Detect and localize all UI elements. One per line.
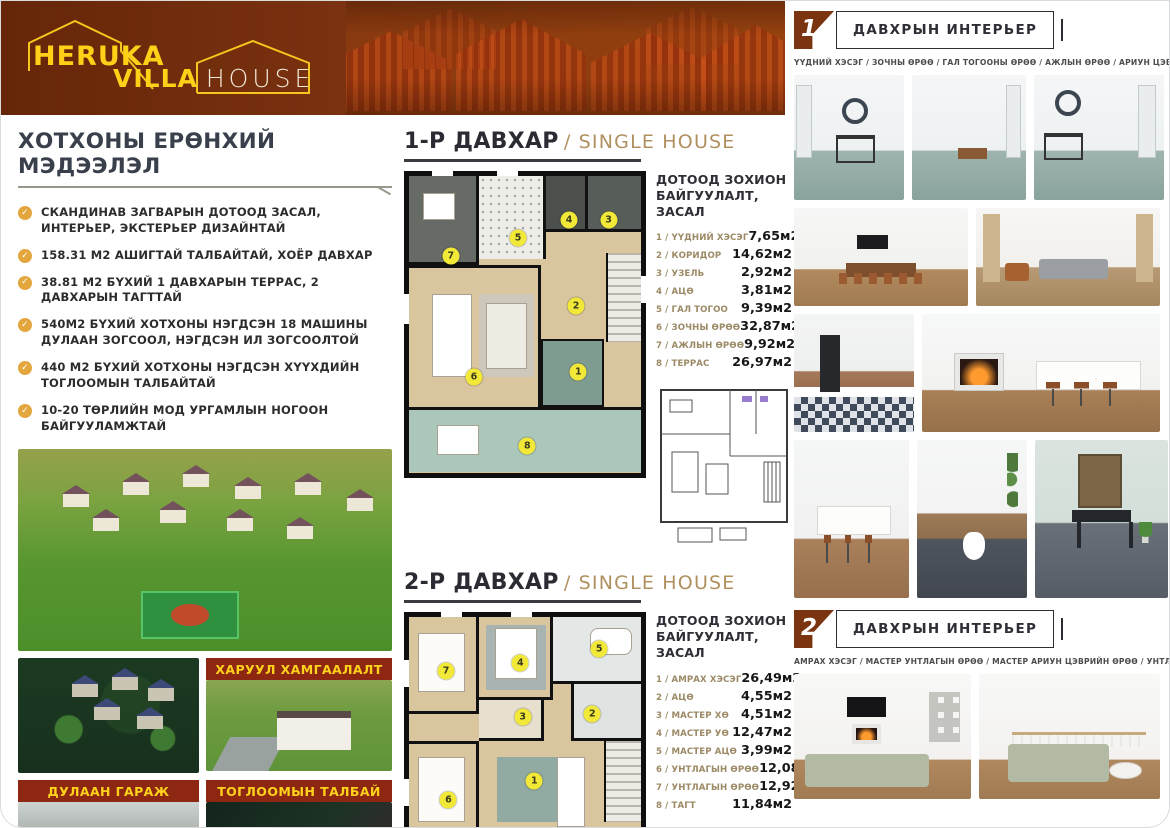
garage-photo-cell: ДУЛААН ГАРАЖ <box>18 780 199 828</box>
bed <box>418 757 464 822</box>
mini-house <box>94 707 120 720</box>
room-area: 9,92м2 <box>744 337 795 352</box>
mini-house <box>112 677 138 690</box>
feature-item: ✓ 10-20 ТӨРЛИЙН МОД УРГАМЛЫН НОГООН БАЙГ… <box>18 403 374 435</box>
floor1-heading: 1-Р ДАВХАР / SINGLE HOUSE <box>404 129 792 154</box>
room-area: 3,81м2 <box>741 283 792 298</box>
room-area: 26,97м2 <box>732 355 792 370</box>
feature-text: 540М2 БҮХИЙ ХОТХОНЫ НЭГДСЭН 18 МАШИНЫ ДУ… <box>41 317 374 349</box>
feature-item: ✓ 158.31 М2 АШИГТАЙ ТАЛБАЙТАЙ, ХОЁР ДАВХ… <box>18 248 374 264</box>
mini-house <box>72 684 98 697</box>
feature-text: 158.31 М2 АШИГТАЙ ТАЛБАЙТАЙ, ХОЁР ДАВХАР <box>41 248 373 264</box>
heading-underline <box>18 186 392 188</box>
security-photo-cell: ХАРУУЛ ХАМГААЛАЛТ <box>206 658 392 773</box>
bathroom-photo <box>917 440 1027 598</box>
interior1-row2 <box>794 208 1168 306</box>
check-icon: ✓ <box>18 249 32 263</box>
room-row: 1 / АМРАХ ХЭСЭГ 26,49м2 <box>656 671 792 686</box>
interior2-title: ДАВХРЫН ИНТЕРЬЕР <box>836 610 1054 648</box>
check-icon: ✓ <box>18 206 32 220</box>
room-area: 9,39м2 <box>741 301 792 316</box>
mini-house <box>93 518 119 531</box>
logo-text-house: HOUSE <box>206 64 314 93</box>
window <box>511 612 532 617</box>
general-info-section: ХОТХОНЫ ЕРӨНХИЙ МЭДЭЭЛЭЛ ✓ СКАНДИНАВ ЗАГ… <box>18 129 392 828</box>
room-row: 1 / ҮҮДНИЙ ХЭСЭГ 7,65м2 <box>656 229 792 244</box>
playground-photo <box>206 802 392 828</box>
stairs <box>604 741 641 822</box>
lounge-rug <box>497 757 557 822</box>
room-area: 26,49м2 <box>741 671 801 686</box>
room-row: 3 / МАСТЕР ХӨ 4,51м2 <box>656 707 792 722</box>
mini-house <box>347 498 373 511</box>
mini-house <box>160 510 186 523</box>
window <box>641 276 646 303</box>
interior1-row3 <box>794 314 1168 432</box>
bar-stool <box>824 535 831 563</box>
interior2-row1 <box>794 674 1168 799</box>
room-row: 7 / АЖЛЫН ӨРӨӨ 9,92м2 <box>656 337 792 352</box>
mini-house <box>148 688 174 701</box>
photo-row-2: ДУЛААН ГАРАЖ ТОГЛООМЫН ТАЛБАЙ <box>18 780 392 828</box>
interior2-header: 2 ДАВХРЫН ИНТЕРЬЕР <box>794 610 1168 648</box>
console-table <box>836 135 876 163</box>
floor2-block: 2-Р ДАВХАР / SINGLE HOUSE <box>404 570 792 828</box>
room-marker: 4 <box>512 654 529 671</box>
armchair <box>1005 263 1029 281</box>
room-name: 4 / АЦӨ <box>656 287 694 297</box>
room-area: 14,62м2 <box>732 247 792 262</box>
family-room-photo-2 <box>979 674 1160 799</box>
check-icon: ✓ <box>18 361 32 375</box>
round-mirror <box>1055 90 1081 116</box>
room-name: 1 / АМРАХ ХЭСЭГ <box>656 675 741 685</box>
bar-stool <box>1103 382 1117 406</box>
bed <box>495 628 537 679</box>
room-marker: 6 <box>465 369 482 386</box>
section-heading: ХОТХОНЫ ЕРӨНХИЙ МЭДЭЭЛЭЛ <box>18 129 392 179</box>
sofa <box>1008 744 1109 782</box>
floor1-plan: 7 5 4 3 2 1 6 8 <box>404 171 646 478</box>
room-name: 4 / МАСТЕР УӨ <box>656 729 729 739</box>
room-name: 6 / УНТЛАГЫН ӨРӨӨ <box>656 765 759 775</box>
bar-counter <box>817 506 891 534</box>
guard-gate-photo <box>206 680 392 771</box>
door <box>796 85 811 158</box>
toilet <box>963 532 985 560</box>
room-marker: 7 <box>442 247 459 264</box>
room-area: 32,87м2 <box>740 319 800 334</box>
plant <box>1139 522 1152 547</box>
playground-photo-cell: ТОГЛООМЫН ТАЛБАЙ <box>206 780 392 828</box>
top-banner: HERUKA VILLAHOUSE <box>1 1 785 115</box>
sofa <box>805 754 929 787</box>
garage-photo <box>18 802 199 828</box>
feature-text: 10-20 ТӨРЛИЙН МОД УРГАМЛЫН НОГООН БАЙГУУ… <box>41 403 374 435</box>
complex-aerial-night-photo <box>18 658 199 773</box>
dining-chairs <box>839 273 923 285</box>
room-marker: 2 <box>568 298 585 315</box>
mini-house <box>183 474 209 487</box>
floor2-underline <box>404 600 641 603</box>
coffee-table <box>1109 762 1142 780</box>
mini-house <box>235 486 261 499</box>
room-row: 6 / УНТЛАГЫН ӨРӨӨ 12,08м2 <box>656 761 792 776</box>
bar-stool <box>845 535 852 563</box>
feature-list: ✓ СКАНДИНАВ ЗАГВАРЫН ДОТООД ЗАСАЛ, ИНТЕР… <box>18 205 392 434</box>
interior1-title: ДАВХРЫН ИНТЕРЬЕР <box>836 11 1054 49</box>
stairs <box>606 253 641 342</box>
sofa <box>486 303 528 368</box>
tile-floor <box>794 397 914 432</box>
interior1-subtitle: ҮҮДНИЙ ХЭСЭГ / ЗОЧНЫ ӨРӨӨ / ГАЛ ТОГООНЫ … <box>794 58 1168 67</box>
room-name: 5 / МАСТЕР АЦӨ <box>656 747 737 757</box>
room-area: 11,84м2 <box>732 797 792 812</box>
dining-room-photo <box>794 208 968 306</box>
feature-item: ✓ СКАНДИНАВ ЗАГВАРЫН ДОТООД ЗАСАЛ, ИНТЕР… <box>18 205 374 237</box>
office-desk <box>1072 510 1131 523</box>
room-area: 7,65м2 <box>748 229 799 244</box>
mini-house <box>295 482 321 495</box>
feature-item: ✓ 440 М2 БҮХИЙ ХОТХОНЫ НЭГДСЭН ХҮҮХДИЙН … <box>18 360 374 392</box>
floor2-badge: 2 <box>794 610 834 648</box>
room-name: 3 / МАСТЕР ХӨ <box>656 711 729 721</box>
gate-road <box>212 737 286 772</box>
living-room-photo <box>976 208 1160 306</box>
room-marker: 1 <box>526 773 543 790</box>
mini-house <box>227 518 253 531</box>
picture-frames <box>929 692 961 742</box>
room-name: 1 / ҮҮДНИЙ ХЭСЭГ <box>656 233 748 243</box>
feature-item: ✓ 540М2 БҮХИЙ ХОТХОНЫ НЭГДСЭН 18 МАШИНЫ … <box>18 317 374 349</box>
room-name: 6 / ЗОЧНЫ ӨРӨӨ <box>656 323 740 333</box>
window <box>441 612 462 617</box>
room-marker: 5 <box>591 641 608 658</box>
entry-hall-photo-2 <box>912 75 1026 200</box>
room-row: 2 / АЦӨ 4,55м2 <box>656 689 792 704</box>
window <box>404 779 409 806</box>
room-row: 4 / МАСТЕР УӨ 12,47м2 <box>656 725 792 740</box>
room-list-heading: ДОТООД ЗОХИОН БАЙГУУЛАЛТ, ЗАСАЛ <box>656 613 792 662</box>
room-name: 2 / АЦӨ <box>656 693 694 703</box>
curtain <box>1136 214 1153 283</box>
room-kitchen <box>479 176 546 259</box>
floor1-blueprint <box>656 382 792 550</box>
logo-text-villa: VILLA <box>113 64 198 93</box>
room-list-heading: ДОТООД ЗОХИОН БАЙГУУЛАЛТ, ЗАСАЛ <box>656 172 792 221</box>
room-marker: 1 <box>570 363 587 380</box>
dining-table <box>432 294 471 377</box>
room-name: 2 / КОРИДОР <box>656 251 721 261</box>
tv <box>847 697 886 717</box>
room-area: 3,99м2 <box>741 743 792 758</box>
floor1-title: 1-Р ДАВХАР <box>404 129 559 154</box>
room-marker: 6 <box>440 792 457 809</box>
floor2-room-list: ДОТООД ЗОХИОН БАЙГУУЛАЛТ, ЗАСАЛ 1 / АМРА… <box>656 612 792 828</box>
kitchen-photo <box>794 314 914 432</box>
room-row: 2 / КОРИДОР 14,62м2 <box>656 247 792 262</box>
window <box>404 294 409 324</box>
title-tick <box>1061 19 1063 41</box>
mini-house <box>63 494 89 507</box>
room-row: 8 / ТЕРРАС 26,97м2 <box>656 355 792 370</box>
room-marker: 7 <box>438 662 455 679</box>
room-area: 12,47м2 <box>732 725 792 740</box>
fireplace <box>852 724 880 744</box>
entry-bench <box>958 148 988 159</box>
court-center <box>171 604 208 626</box>
room-name: 8 / ТАГТ <box>656 801 696 811</box>
entry-hall-photo-1 <box>794 75 904 200</box>
entry-hall-photo-3 <box>1034 75 1164 200</box>
interior1-header: 1 ДАВХРЫН ИНТЕРЬЕР <box>794 11 1168 49</box>
floor2-plan: 7 4 5 3 2 6 1 8 <box>404 612 646 828</box>
room-marker: 3 <box>514 708 531 725</box>
garage-label: ДУЛААН ГАРАЖ <box>18 780 199 802</box>
interior-gallery-section: 1 ДАВХРЫН ИНТЕРЬЕР ҮҮДНИЙ ХЭСЭГ / ЗОЧНЫ … <box>794 9 1168 799</box>
room-marker: 5 <box>510 229 527 246</box>
room-row: 4 / АЦӨ 3,81м2 <box>656 283 792 298</box>
bar-stool <box>865 535 872 563</box>
sports-court <box>141 591 238 639</box>
title-tick <box>1061 618 1063 640</box>
mini-house <box>287 526 313 539</box>
room-name: 8 / ТЕРРАС <box>656 359 709 369</box>
room-area: 4,51м2 <box>741 707 792 722</box>
interior2-subtitle: АМРАХ ХЭСЭГ / МАСТЕР УНТЛАГЫН ӨРӨӨ / МАС… <box>794 657 1168 666</box>
fireplace-bar-photo <box>922 314 1160 432</box>
room-area: 4,55м2 <box>741 689 792 704</box>
complex-aerial-day-photo <box>18 449 392 651</box>
fireplace <box>955 354 1003 389</box>
sofa <box>1039 259 1109 279</box>
room-marker: 4 <box>561 212 578 229</box>
bar-stool <box>1074 382 1088 406</box>
room-marker: 3 <box>600 212 617 229</box>
room-name: 3 / УЗЕЛЬ <box>656 269 704 279</box>
gate-house <box>277 711 351 749</box>
room-row: 5 / ГАЛ ТОГОО 9,39м2 <box>656 301 792 316</box>
check-icon: ✓ <box>18 276 32 290</box>
terrace-table <box>437 425 479 455</box>
floor1-block: 1-Р ДАВХАР / SINGLE HOUSE <box>404 129 792 554</box>
console-table <box>1044 133 1083 161</box>
room-row: 3 / УЗЕЛЬ 2,92м2 <box>656 265 792 280</box>
mini-house <box>137 716 163 729</box>
fridge <box>820 335 839 392</box>
room-row: 5 / МАСТЕР АЦӨ 3,99м2 <box>656 743 792 758</box>
interior1-row1 <box>794 75 1168 200</box>
check-icon: ✓ <box>18 318 32 332</box>
room-name: 5 / ГАЛ ТОГОО <box>656 305 728 315</box>
door <box>1006 85 1022 158</box>
floorplans-section: 1-Р ДАВХАР / SINGLE HOUSE <box>404 129 792 828</box>
floor2-blueprint <box>656 824 792 828</box>
check-icon: ✓ <box>18 404 32 418</box>
room-row: 6 / ЗОЧНЫ ӨРӨӨ 32,87м2 <box>656 319 792 334</box>
hanging-plant <box>1007 453 1018 519</box>
security-label: ХАРУУЛ ХАМГААЛАЛТ <box>206 658 392 680</box>
room-list: 1 / АМРАХ ХЭСЭГ 26,49м2 2 / АЦӨ 4,55м2 3… <box>656 671 792 812</box>
office-desk <box>423 193 455 220</box>
photo-row-1: ХАРУУЛ ХАМГААЛАЛТ <box>18 658 392 773</box>
room-list: 1 / ҮҮДНИЙ ХЭСЭГ 7,65м2 2 / КОРИДОР 14,6… <box>656 229 792 370</box>
window <box>432 171 453 176</box>
bar-stool <box>1046 382 1060 406</box>
room-row: 7 / УНТЛАГЫН ӨРӨӨ 12,92м2 <box>656 779 792 794</box>
logo-text-row2: VILLAHOUSE <box>113 64 314 93</box>
window <box>404 660 409 687</box>
feature-text: 38.81 М2 БҮХИЙ 1 ДАВХАРЫН ТЕРРАС, 2 ДАВХ… <box>41 275 374 307</box>
logo: HERUKA VILLAHOUSE <box>1 1 346 115</box>
curtain <box>983 214 1000 283</box>
round-mirror <box>842 98 868 124</box>
floor1-room-list: ДОТООД ЗОХИОН БАЙГУУЛАЛТ, ЗАСАЛ 1 / ҮҮДН… <box>656 171 792 555</box>
floor1-badge: 1 <box>794 11 834 49</box>
bar-counter-photo <box>794 440 909 598</box>
sofa <box>557 757 585 827</box>
room-marker: 2 <box>584 705 601 722</box>
floor1-subtitle: / SINGLE HOUSE <box>564 131 736 153</box>
room-marker: 8 <box>519 437 536 454</box>
home-office-photo <box>1035 440 1168 598</box>
floor2-subtitle: / SINGLE HOUSE <box>564 572 736 594</box>
room-name: 7 / АЖЛЫН ӨРӨӨ <box>656 341 744 351</box>
room-row: 8 / ТАГТ 11,84м2 <box>656 797 792 812</box>
room-area: 2,92м2 <box>741 265 792 280</box>
feature-item: ✓ 38.81 М2 БҮХИЙ 1 ДАВХАРЫН ТЕРРАС, 2 ДА… <box>18 275 374 307</box>
feature-text: 440 М2 БҮХИЙ ХОТХОНЫ НЭГДСЭН ХҮҮХДИЙН ТО… <box>41 360 374 392</box>
floor2-heading: 2-Р ДАВХАР / SINGLE HOUSE <box>404 570 792 595</box>
floor2-title: 2-Р ДАВХАР <box>404 570 559 595</box>
feature-text: СКАНДИНАВ ЗАГВАРЫН ДОТООД ЗАСАЛ, ИНТЕРЬЕ… <box>41 205 374 237</box>
door <box>1138 85 1156 158</box>
room-name: 7 / УНТЛАГЫН ӨРӨӨ <box>656 783 759 793</box>
mini-house <box>123 482 149 495</box>
room-closet <box>479 700 544 741</box>
bookshelf <box>1080 456 1120 507</box>
interior1-row4 <box>794 440 1168 598</box>
tv <box>857 235 888 249</box>
floor1-underline <box>404 159 641 162</box>
playground-label: ТОГЛООМЫН ТАЛБАЙ <box>206 780 392 802</box>
window <box>497 171 518 176</box>
room-bath-2 <box>571 684 641 741</box>
family-room-photo-1 <box>794 674 971 799</box>
brochure-page: HERUKA VILLAHOUSE ХОТХОНЫ ЕРӨНХИЙ МЭДЭЭЛ… <box>0 0 1170 828</box>
